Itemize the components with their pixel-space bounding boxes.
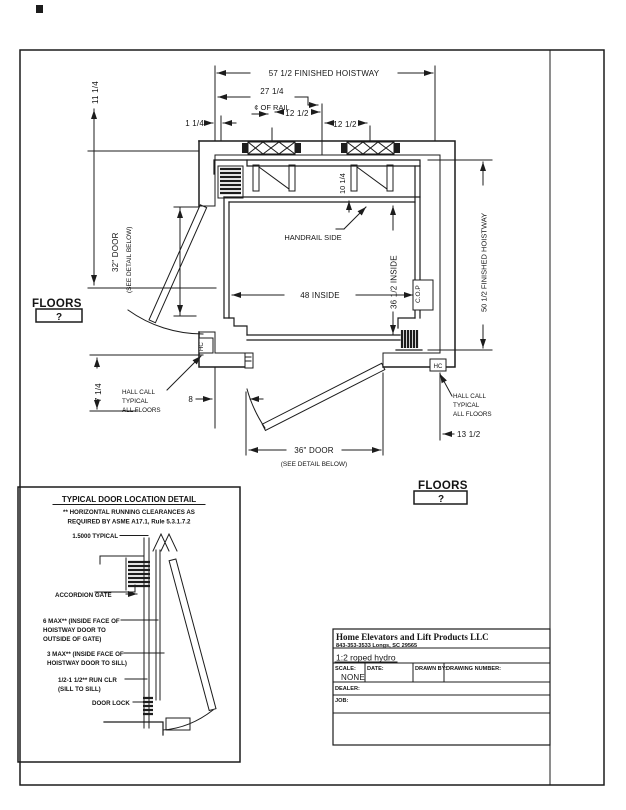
dim-handrail: 10 1/4 (338, 173, 349, 212)
hall-call-note-left: HALL CALL TYPICAL ALL FLOORS (122, 356, 201, 414)
title-block: Home Elevators and Lift Products LLC 843… (333, 629, 550, 745)
drawing-number-label: DRAWING NUMBER: (446, 666, 501, 672)
door-left-label: 32" DOOR (111, 232, 120, 272)
dealer-label: DEALER: (335, 686, 360, 692)
dim-door-bottom: 36" DOOR (SEE DETAIL BELOW) (246, 373, 383, 468)
hall-call-right-line3: ALL FLOORS (453, 411, 492, 418)
hall-call-box-left-label: HC (199, 342, 205, 351)
detail-gate-stack (95, 556, 150, 592)
hall-call-note-right: HALL CALL TYPICAL ALL FLOORS (440, 374, 492, 418)
dim-left-upper: 11 1/4 (88, 81, 216, 288)
elevator-plan-drawing: C.O.P HC HC 57 1/2 FINISHED HOISTWAY 27 … (0, 0, 626, 810)
date-label: DATE: (367, 666, 384, 672)
detail-run-clr-2: (SILL TO SILL) (58, 686, 101, 693)
accordion-gate-stack-top (218, 166, 243, 198)
dim-rail-offset-text: 27 1/4 (260, 87, 284, 96)
cab-walls (214, 160, 422, 350)
detail-typical-label: 1.5000 TYPICAL (72, 534, 118, 540)
dim-left-upper-text: 11 1/4 (91, 81, 100, 104)
dim-rail-right-text: 12 1/2 (333, 120, 357, 129)
company-address: 843-353-3533 Longs, SC 29565 (336, 643, 417, 649)
dim-rail-left-text: 12 1/2 (285, 109, 309, 118)
detail-note1: ** HORIZONTAL RUNNING CLEARANCES AS (63, 509, 195, 516)
floors-left-value: ? (56, 312, 62, 323)
dim-wall-clear: 1 1/4 (185, 116, 236, 141)
drawn-by-label: DRAWN BY: (415, 666, 447, 672)
dim-top-width-text: 57 1/2 FINISHED HOISTWAY (269, 69, 380, 78)
accordion-gate-stack-bottom (402, 330, 417, 348)
dim-rail-spacing-right: 12 1/2 (325, 120, 367, 129)
corner-mark (36, 5, 43, 13)
dim-door-offset: 8 (188, 368, 263, 428)
dim-inside-width: 48 INSIDE (232, 291, 413, 300)
detail-gate-label: ACCORDION GATE (55, 592, 112, 599)
company-name: Home Elevators and Lift Products LLC (336, 632, 489, 642)
detail-door-section (144, 534, 216, 730)
handrail-label: HANDRAIL SIDE (284, 233, 341, 242)
floors-right-label: FLOORS (418, 480, 468, 492)
detail-title: TYPICAL DOOR LOCATION DETAIL (62, 495, 196, 504)
hall-call-right-line2: TYPICAL (453, 402, 480, 409)
detail-max-gate-2: HOISTWAY DOOR TO (43, 627, 106, 634)
hall-call-box-right-label: HC (434, 364, 443, 370)
detail-sill (104, 718, 190, 735)
sheet-border (20, 5, 604, 785)
floors-right: FLOORS ? (414, 480, 468, 505)
dim-inside-depth: 36 1/2 INSIDE (390, 206, 399, 334)
door-bottom-label: 36" DOOR (294, 446, 334, 455)
detail-run-clr-1: 1/2-1 1/2** RUN CLR (58, 677, 117, 684)
floors-left-label: FLOORS (32, 298, 82, 310)
door-bottom-sub: (SEE DETAIL BELOW) (281, 461, 347, 468)
scale-value: NONE (341, 673, 365, 682)
drawing-sheet: C.O.P HC HC 57 1/2 FINISHED HOISTWAY 27 … (0, 0, 626, 810)
door-detail-box: TYPICAL DOOR LOCATION DETAIL ** HORIZONT… (18, 487, 240, 762)
dim-door-left: 32" DOOR (SEE DETAIL BELOW) (111, 207, 199, 316)
dim-handrail-text: 10 1/4 (338, 173, 347, 194)
scale-label: SCALE: (335, 666, 356, 672)
job-label: JOB: (335, 698, 349, 704)
dim-finished-hoistway-width: 57 1/2 FINISHED HOISTWAY (215, 66, 435, 140)
swing-door-left (128, 205, 207, 334)
detail-note2: REQUIRED BY ASME A17.1, Rule 5.3.1.7.2 (68, 519, 191, 526)
dim-finished-hoistway-height: 50 1/2 FINISHED HOISTWAY (428, 160, 492, 350)
swing-door-bottom (245, 353, 385, 430)
hall-call-left-line3: ALL FLOORS (122, 407, 161, 414)
dim-inside-width-text: 48 INSIDE (300, 291, 340, 300)
dim-left-lower-text: 7 1/4 (94, 383, 103, 402)
hall-call-right-line1: HALL CALL (453, 393, 487, 400)
dim-door-offset-text: 8 (188, 395, 193, 404)
hall-call-left-line1: HALL CALL (122, 389, 156, 396)
hall-call-left-line2: TYPICAL (122, 398, 149, 405)
cop-panel: C.O.P (413, 280, 433, 310)
detail-max-sill-2: HOISTWAY DOOR TO SILL) (47, 660, 127, 667)
dim-right-offset-text: 13 1/2 (457, 430, 481, 439)
rail-inserts (242, 142, 400, 154)
handrail-note: HANDRAIL SIDE (284, 207, 366, 242)
dim-wall-clear-text: 1 1/4 (185, 119, 204, 128)
dim-inside-depth-text: 36 1/2 INSIDE (390, 255, 399, 309)
door-left-sub: (SEE DETAIL BELOW) (126, 227, 133, 293)
dim-right-height-text: 50 1/2 FINISHED HOISTWAY (480, 213, 489, 312)
detail-max-gate-1: 6 MAX** (INSIDE FACE OF (43, 618, 120, 625)
cop-label: C.O.P (415, 285, 422, 303)
floors-right-value: ? (438, 494, 444, 505)
rail-brackets (253, 165, 393, 191)
model-label: 1:2 roped hydro (336, 653, 396, 663)
detail-max-sill-1: 3 MAX** (INSIDE FACE OF (47, 651, 124, 658)
h बc-box-left: HC (199, 338, 213, 353)
floors-left: FLOORS ? (32, 298, 82, 323)
hc-box-right: HC (430, 359, 446, 371)
detail-max-gate-3: OUTSIDE OF GATE) (43, 636, 101, 643)
detail-lock-label: DOOR LOCK (92, 700, 130, 707)
